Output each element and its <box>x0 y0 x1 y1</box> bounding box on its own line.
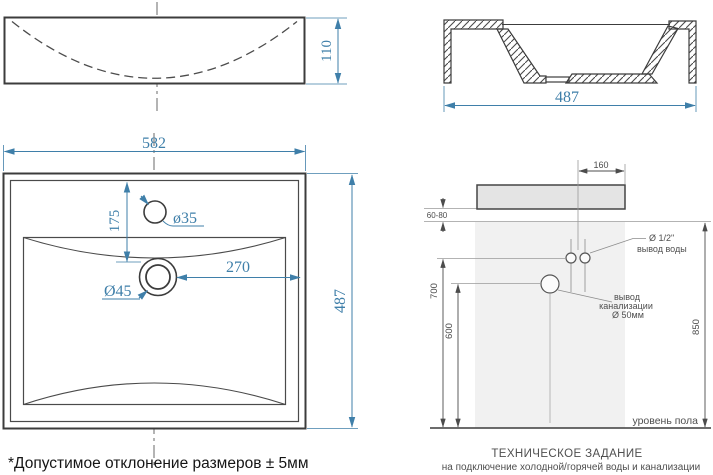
dim-top-depth: 487 <box>332 289 349 313</box>
installation-view: 160 60-80 Ø 1/2" вывод воды вывод канали… <box>424 160 711 473</box>
dim-section-width: 487 <box>555 89 579 106</box>
drain-hole-outer <box>140 259 177 296</box>
drawing-canvas: 110 487 582 487 <box>0 0 713 475</box>
section-dimension: 487 <box>444 86 696 112</box>
dim-drain-offset: 270 <box>226 259 250 276</box>
sink-silhouette <box>477 185 625 209</box>
dim-faucet-hole: ø35 <box>173 210 197 227</box>
tolerance-footnote: *Допустимое отклонение размеров ± 5мм <box>8 455 308 472</box>
front-view-body <box>5 18 305 84</box>
dim-water-height: 700 <box>429 283 440 299</box>
water-outlet-right <box>580 253 590 263</box>
installation-subtitle: на подключение холодной/горячей воды и к… <box>442 462 700 473</box>
sewage-outlet <box>541 275 559 293</box>
dim-faucet-offset: 175 <box>107 210 123 233</box>
faucet-hole <box>144 201 166 223</box>
floor-level-label: уровень пола <box>632 415 698 427</box>
top-view: 582 487 175 ø35 270 Ø45 <box>4 133 359 466</box>
dim-top-width: 582 <box>142 135 166 152</box>
section-overflow-channel <box>546 77 569 82</box>
water-outlet-size-label: Ø 1/2" <box>649 233 674 243</box>
sewage-label-3: Ø 50мм <box>612 310 644 320</box>
dim-tap-offset: 160 <box>593 160 608 170</box>
section-left-wall <box>444 20 503 83</box>
section-view <box>444 20 696 83</box>
dim-drain-hole: Ø45 <box>104 283 132 300</box>
front-view: 110 <box>5 2 348 114</box>
installation-title: ТЕХНИЧЕСКОЕ ЗАДАНИЕ <box>491 448 642 460</box>
dim-rim-height: 850 <box>691 319 702 335</box>
water-outlet-left <box>566 253 576 263</box>
drawing-sheet: 110 487 582 487 <box>0 0 713 475</box>
dim-wall-gap: 60-80 <box>427 211 448 220</box>
water-outlet-label: вывод воды <box>637 244 687 254</box>
dim-front-height: 110 <box>319 40 335 62</box>
section-right-slope <box>642 26 678 74</box>
section-bottom-slab <box>566 74 657 83</box>
section-left-slope <box>497 29 546 83</box>
dim-drain-height: 600 <box>444 323 455 339</box>
